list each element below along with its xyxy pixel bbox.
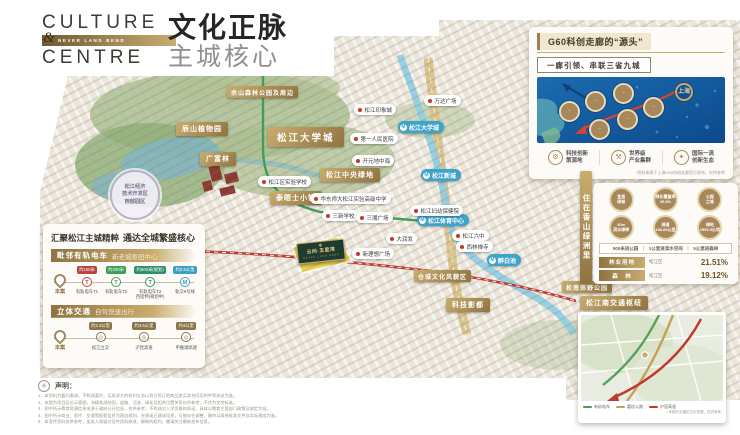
district-banner: 佘山森林公园及周边 [227,86,298,98]
stop-distance-banner: 约200米 [106,265,127,274]
slogan-separator: ｜ [641,246,646,252]
transit-title-a: 汇聚松江主城精粹 [51,233,119,243]
drive-line-diagram: 本案约3.3公里◎松江立交约3.5公里◎沪昆高速约4公里◎申嘉湖高速 [51,321,197,352]
poi-dot-icon [354,137,358,141]
legend-line-icon [616,406,625,408]
origin-label: 本案 [55,345,65,352]
district-banner: 广富林 [200,152,236,166]
g60-title-wrap: G60科创走廊的“源头” [537,32,725,53]
brand-band: & NEVER LAND BEND [42,35,176,46]
transit-stop: 约200米T有轨电车T2 [105,265,127,300]
stop-distance-banner: 约3.5公里 [132,321,156,330]
headline-bold: 文化正脉 [168,12,288,43]
poi-label: 松江六中 [452,230,489,241]
district-banner: 辰山植物园 [176,122,228,136]
stat-badge: ··· [613,83,634,104]
metro-station-label: M松江新城 [421,169,461,181]
poster: 佘山森林公园及周边辰山植物园广富林松江大学城松江中央绿地泰晤士小镇仓城文化风貌区… [0,0,740,435]
poi-label: 松江妇幼保健院 [410,205,463,216]
metro-icon: M [423,172,430,179]
transit-stop: 约4公里◎申嘉湖高速 [175,321,196,352]
stat-sublabel: 松江区 [649,273,663,279]
transit-mode-icon: M [180,277,190,287]
medal-line2: 1505.5公顷 [700,228,720,233]
poi-label: 开元地中海 [352,155,394,166]
transit-row: 本案约3.3公里◎松江立交约3.5公里◎沪昆高速约4公里◎申嘉湖高速 [51,321,197,352]
green-medal: 绿化覆盖率25.8% [653,187,678,212]
stop-label: 有轨电车T1 [76,289,98,294]
legend-label: 有轨电车 [594,404,610,410]
inset-map-artwork [581,315,723,401]
metro-station-label: M醉白池 [487,254,521,266]
declaration-lines: 1、本资料为要约邀请，不构成要约，买卖双方的权利义务以双方签订的商品房买卖合同及… [38,393,562,426]
poi-label: 华东师大松江实验高级中学 [310,193,391,204]
poi-dot-icon [360,216,364,220]
stop-node: T [82,274,92,289]
stop-label: 有轨电车T2 西延伸(规划中) [136,289,165,300]
green-stat-row: 林业用地松江区21.51% [599,257,732,268]
poi-label: 三新学校 [322,210,359,221]
feature-icon: ⚙ [548,150,563,165]
g60-subtitle: 一廊引领、串联三省九城 [537,57,651,73]
poi-dot-icon [326,214,330,218]
poi-label: 松江区实验学校 [258,176,311,187]
tram-bar-label: 毗邻有轨电车 [57,250,108,261]
metro-icon: M [489,257,496,264]
g60-region-map: 上海·················· [537,77,725,143]
inset-map [581,315,723,401]
transit-mode-icon: T [145,277,155,287]
stop-label: 有轨电车T2 [105,289,127,294]
poi-dot-icon [314,197,318,201]
transit-stop: 约600米(规划)T有轨电车T2 西延伸(规划中) [134,265,166,300]
poi-label: 大润发 [386,233,417,244]
feature-label: 国际一流创新生态 [692,151,714,165]
tram-section-bar: 毗邻有轨电车 新老城枢纽中心 [51,249,197,262]
declaration-title: 声明： [55,381,76,391]
declaration: ✳ 声明： 1、本资料为要约邀请，不构成要约，买卖双方的权利义务以双方签订的商品… [34,378,566,428]
green-medal: 绿地1505.5公顷 [697,215,722,240]
feature-label: 世界级产业集群 [629,151,651,165]
brand-tagline: NEVER LAND BEND [58,38,125,43]
tram-bar-sublabel: 新老城枢纽中心 [112,251,158,261]
g60-features: ⚙科技创新策源地⚒世界级产业集群✦国际一流创新生态 [537,147,725,168]
stop-distance-banner: 约2.5公里 [173,265,197,274]
legend-line-icon [583,406,592,408]
legend-item: 沪昆高速 [649,404,676,410]
origin-label: 本案 [55,289,65,296]
slogan-segment: 1公里进滨水空间 [649,246,683,252]
stat-badge: ··· [589,119,610,140]
slogan-segment: 500米进公园 [613,246,639,252]
inset-legend: 有轨电车嘉松公路沪昆高速 [581,401,723,410]
metro-station-label: M松江大学城 [398,121,444,133]
district-banner: 松江南交通枢纽 [580,296,648,310]
stat-label: 林业用地 [599,257,645,268]
location-pin-icon [52,327,69,344]
poi-dot-icon [390,237,394,241]
feature-label: 科技创新策源地 [566,151,588,165]
transit-stop: 约3.5公里◎沪昆高速 [132,321,156,352]
poi-label: 松江印象城 [354,104,396,115]
origin-node [54,274,66,289]
drive-bar-label: 立体交通 [57,306,91,317]
g60-feature: ⚙科技创新策源地 [537,150,599,165]
location-pin-icon [52,272,69,289]
stat-badge: ··· [617,109,638,130]
stop-node: ◎ [139,330,149,345]
metro-icon: M [400,124,407,131]
stop-distance-banner: 约600米(规划) [134,265,166,274]
poi-dot-icon [356,252,360,256]
green-strip-banner: 住在香山绿洲里 [580,171,592,284]
inset-map-panel: 有轨电车嘉松公路沪昆高速 *本图为交通区位示意图，仅供参考 [578,312,726,423]
poi-label: 三湘广场 [356,212,393,223]
district-banner: 仓城文化风貌区 [414,270,471,282]
transit-stop: 约3.3公里◎松江立交 [89,321,113,352]
metro-icon: M [419,217,426,224]
stop-label: 申嘉湖高速 [175,345,196,350]
stop-label: 沪昆高速 [135,345,152,350]
green-medal: 宜居绿城 [609,187,634,212]
transit-panel: 汇聚松江主城精粹通达全城繁盛核心 毗邻有轨电车 新老城枢纽中心 本案约100米T… [43,224,205,368]
transit-mode-icon: ◎ [181,332,191,342]
medal-line2: 108.86公里 [655,228,675,233]
slogan-segment: 5公里进森林 [693,246,718,252]
feature-icon: ✦ [674,150,689,165]
transit-stop: 约2.5公里M轨交9号线 [173,265,197,300]
stat-label: 森 林 [599,270,645,281]
green-stat-row: 森 林松江区19.12% [599,270,732,281]
green-medal: 30m滨水绿带 [609,215,634,240]
poi-dot-icon [262,180,266,184]
transit-mode-icon: T [82,277,92,287]
stop-label: 轨交9号线 [175,289,195,294]
legend-item: 嘉松公路 [616,404,643,410]
green-slogan-bar: 500米进公园｜1公里进滨水空间｜5公里进森林 [599,243,732,254]
green-medal: 绿道108.86公里 [653,215,678,240]
stop-label: 松江立交 [92,345,109,350]
transit-stop: 约100米T有轨电车T1 [76,265,98,300]
stat-value: 21.51% [701,258,732,267]
drive-bar-sublabel: 自驾快速出行 [95,306,134,316]
stat-badge: ··· [559,101,580,122]
inset-caption: *本图为交通区位示意图，仅供参考 [581,410,723,415]
transit-origin: 本案 [51,321,69,352]
district-banner: 松江中央绿地 [320,168,380,182]
stat-sublabel: 松江区 [649,259,663,265]
stop-node: ◎ [96,330,106,345]
transit-mode-icon: ◎ [96,332,106,342]
poi-label: 西林禅寺 [456,241,493,252]
green-medal: 公园之城 [697,187,722,212]
medal-line2: 之城 [706,200,714,205]
declaration-header: ✳ 声明： [38,380,562,392]
medal-line2: 滨水绿带 [613,228,629,233]
devzone-line: 技术开发区 [122,191,148,198]
stat-badge: ··· [585,91,606,112]
poi-dot-icon [456,234,460,238]
feature-icon: ⚒ [611,150,626,165]
stat-badge: ··· [643,97,664,118]
green-stat-rows: 林业用地松江区21.51%森 林松江区19.12% [599,257,732,282]
brand-line1: CULTURE [42,13,176,33]
tram-line-diagram: 本案约100米T有轨电车T1约200米T有轨电车T2约600米(规划)T有轨电车… [51,265,197,300]
compass-icon: ✳ [38,380,50,392]
stat-value: 19.12% [701,271,732,280]
district-banner: 科技影都 [446,298,490,312]
medal-line2: 25.8% [660,200,671,205]
devzone-medallion: 松江经济技术开发区西部园区 [110,170,160,220]
transit-panel-title: 汇聚松江主城精粹通达全城繁盛核心 [51,231,197,244]
poi-dot-icon [356,159,360,163]
stop-node: M [180,274,190,289]
transit-origin: 本案 [51,265,69,300]
transit-mode-icon: T [111,277,121,287]
poi-dot-icon [460,245,464,249]
headline-light: 主城核心 [168,43,288,71]
legend-label: 嘉松公路 [627,404,643,410]
g60-title: G60科创走廊的“源头” [537,33,651,50]
legend-line-icon [649,406,658,408]
transit-mode-icon: ◎ [139,332,149,342]
poi-dot-icon [358,108,362,112]
origin-node [54,330,66,345]
medal-line2: 绿城 [617,200,625,205]
shanghai-badge: 上海 [675,83,693,101]
stop-node: T [111,274,121,289]
poi-label: 新理想广场 [352,248,394,259]
legend-label: 沪昆高速 [660,404,676,410]
ampersand-monogram-icon: & [43,30,55,47]
stop-distance-banner: 约100米 [77,265,98,274]
poi-label: 第一人民医院 [350,133,398,144]
stop-node: ◎ [181,330,191,345]
g60-panel: G60科创走廊的“源头” 一廊引领、串联三省九城 上海·············… [529,27,733,179]
legend-item: 有轨电车 [583,404,610,410]
transit-row: 本案约100米T有轨电车T1约200米T有轨电车T2约600米(规划)T有轨电车… [51,265,197,300]
stop-distance-banner: 约4公里 [176,321,196,330]
poi-label: 万达广场 [424,95,461,106]
green-medals: 宜居绿城绿化覆盖率25.8%公园之城30m滨水绿带绿道108.86公里绿地150… [599,187,732,240]
devzone-line: 西部园区 [125,199,146,206]
brand-lockup: CULTURE & NEVER LAND BEND CENTRE [42,13,176,68]
g60-feature: ✦国际一流创新生态 [662,150,725,165]
headline: 文化正脉 主城核心 [168,12,288,71]
slogan-separator: ｜ [686,246,691,252]
transit-title-b: 通达全城繁盛核心 [123,233,195,243]
poi-dot-icon [428,99,432,103]
stop-node: T [145,274,155,289]
poi-dot-icon [414,209,418,213]
declaration-line: 5、本宣传资料仅供参考，出卖人保留对宣传资料修改、解释的权利，敬请关注最新发布信… [38,419,562,426]
g60-feature: ⚒世界级产业集群 [599,150,662,165]
brand-line2: CENTRE [42,48,176,68]
district-banner: 松江大学城 [268,127,344,147]
g60-footnote: *资料来源于上海G60科创走廊官方发布，仅供参考 [537,170,725,176]
drive-section-bar: 立体交通 自驾快速出行 [51,305,197,318]
stop-distance-banner: 约3.3公里 [89,321,113,330]
green-stats-panel: 宜居绿城绿化覆盖率25.8%公园之城30m滨水绿带绿道108.86公里绿地150… [593,183,738,284]
